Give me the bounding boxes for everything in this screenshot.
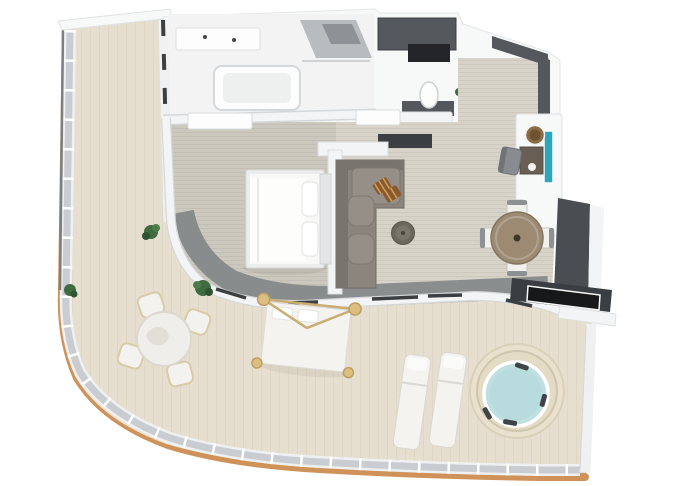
toilet — [420, 82, 438, 108]
dining-table-center — [514, 235, 521, 242]
bathroom — [168, 14, 374, 118]
sofa-seat-cushion — [348, 196, 374, 226]
canopy-post — [343, 367, 354, 378]
faucet-icon — [203, 35, 207, 39]
daybed-pillow — [298, 309, 319, 323]
bed-pillow — [302, 182, 318, 216]
bedroom-furniture — [243, 170, 331, 275]
daybed-pillow — [272, 306, 293, 320]
door-track — [372, 297, 418, 299]
plant-leaf — [71, 291, 78, 298]
window-sill-box — [356, 110, 400, 125]
desk-chair — [498, 146, 522, 175]
faucet-icon — [232, 38, 236, 42]
window-sill-box — [188, 113, 252, 129]
headboard — [320, 174, 331, 264]
bathtub-basin — [223, 73, 291, 103]
floorplan-svg — [0, 0, 680, 486]
floorplan-canvas — [0, 0, 680, 486]
door-track — [428, 295, 462, 296]
railing-right-band — [585, 324, 591, 472]
jacuzzi — [470, 344, 564, 438]
bed-pillow — [302, 222, 318, 256]
canopy-post — [257, 293, 270, 306]
round-stool-top — [530, 130, 541, 141]
pouf-center — [401, 231, 405, 235]
plant-leaf — [152, 224, 160, 232]
double-vanity — [176, 28, 260, 50]
sofa-seat-cushion — [348, 234, 374, 264]
plant-leaf — [142, 232, 150, 240]
round-pouf — [392, 222, 415, 245]
canopy-post — [348, 302, 361, 315]
jacuzzi-water-inner — [490, 368, 542, 420]
teal-mirror — [544, 131, 553, 183]
chair-back — [549, 228, 554, 248]
canopy-post — [251, 358, 262, 369]
chair-back — [507, 271, 527, 276]
plant-leaf — [193, 281, 201, 289]
chair-back — [480, 228, 485, 248]
desk-bowl — [528, 163, 536, 171]
sofa-back-left — [336, 160, 348, 288]
chair-back — [507, 200, 527, 205]
plant-leaf — [205, 288, 213, 296]
wardrobe-shelf — [408, 44, 450, 62]
